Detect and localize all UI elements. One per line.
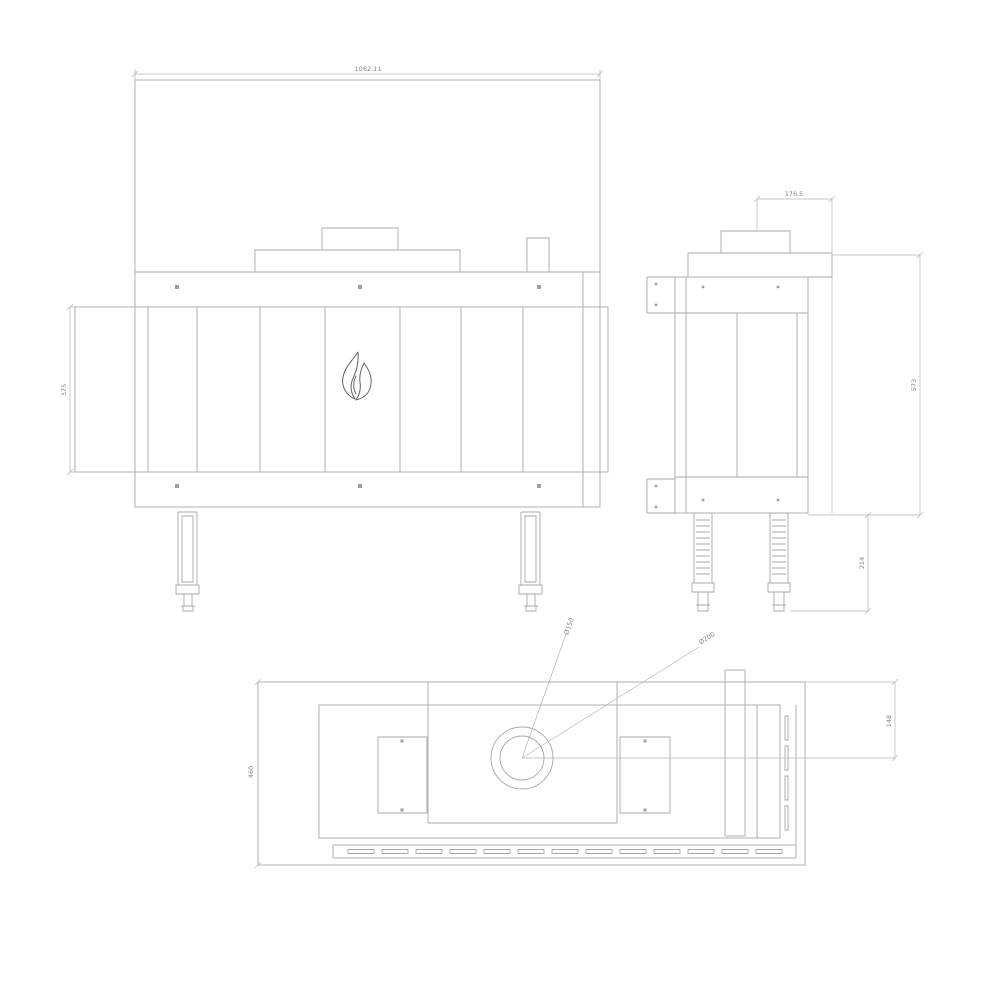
plan-right-panel-lines bbox=[757, 705, 796, 858]
flame-icon bbox=[343, 352, 372, 400]
plan-front-vent-strip bbox=[333, 845, 796, 858]
plan-dimension-lines bbox=[255, 634, 898, 868]
side-height-dim-label: 573 bbox=[910, 379, 918, 391]
plan-flue-outer-diameter-label: Ø200 bbox=[697, 630, 716, 646]
front-glass-dividers bbox=[148, 307, 523, 472]
front-view: 1062.11 375 bbox=[60, 65, 608, 611]
plan-right-vent-slots bbox=[785, 716, 788, 830]
plan-bracket-plates bbox=[378, 737, 670, 813]
plan-central-section bbox=[428, 682, 617, 823]
plan-side-glass-strip bbox=[725, 670, 745, 836]
side-left-leg bbox=[692, 513, 714, 611]
plan-view: 460 148 Ø150 Ø200 bbox=[247, 617, 898, 868]
side-right-leg bbox=[768, 513, 790, 611]
side-leg-dim-label: 214 bbox=[858, 557, 866, 569]
side-inner-lines bbox=[675, 277, 808, 513]
front-chimney-boxes bbox=[255, 228, 549, 272]
plan-screw-marks bbox=[401, 740, 647, 812]
side-body bbox=[675, 277, 808, 513]
front-height-dimension-lines bbox=[67, 304, 75, 475]
side-flue-offset-dimension-lines bbox=[754, 196, 835, 513]
side-height-dimension-lines bbox=[808, 252, 923, 518]
plan-depth-dim-label: 460 bbox=[247, 766, 255, 778]
front-glass-band bbox=[75, 307, 608, 472]
front-width-dim-label: 1062.11 bbox=[355, 65, 382, 73]
plan-flue-center-dim-label: 148 bbox=[885, 715, 893, 727]
side-flue-offset-dim-label: 176.5 bbox=[785, 190, 804, 198]
front-left-leg bbox=[176, 512, 199, 611]
front-outer-body bbox=[135, 80, 600, 507]
side-view: 176.5 573 214 bbox=[647, 190, 923, 614]
side-screw-marks bbox=[655, 283, 780, 509]
front-height-dim-label: 375 bbox=[60, 384, 68, 396]
technical-drawing-canvas: 1062.11 375 176.5 bbox=[0, 0, 1000, 1000]
fireplace-three-view-drawing: 1062.11 375 176.5 bbox=[0, 0, 1000, 1000]
front-right-leg bbox=[519, 512, 542, 611]
front-screw-marks bbox=[175, 285, 541, 488]
plan-flue-inner-diameter-label: Ø150 bbox=[562, 617, 576, 636]
plan-outer-frame bbox=[258, 682, 805, 865]
plan-front-vent-slots bbox=[348, 850, 782, 854]
side-wall-brackets bbox=[647, 277, 675, 513]
side-top-steps bbox=[688, 231, 832, 277]
